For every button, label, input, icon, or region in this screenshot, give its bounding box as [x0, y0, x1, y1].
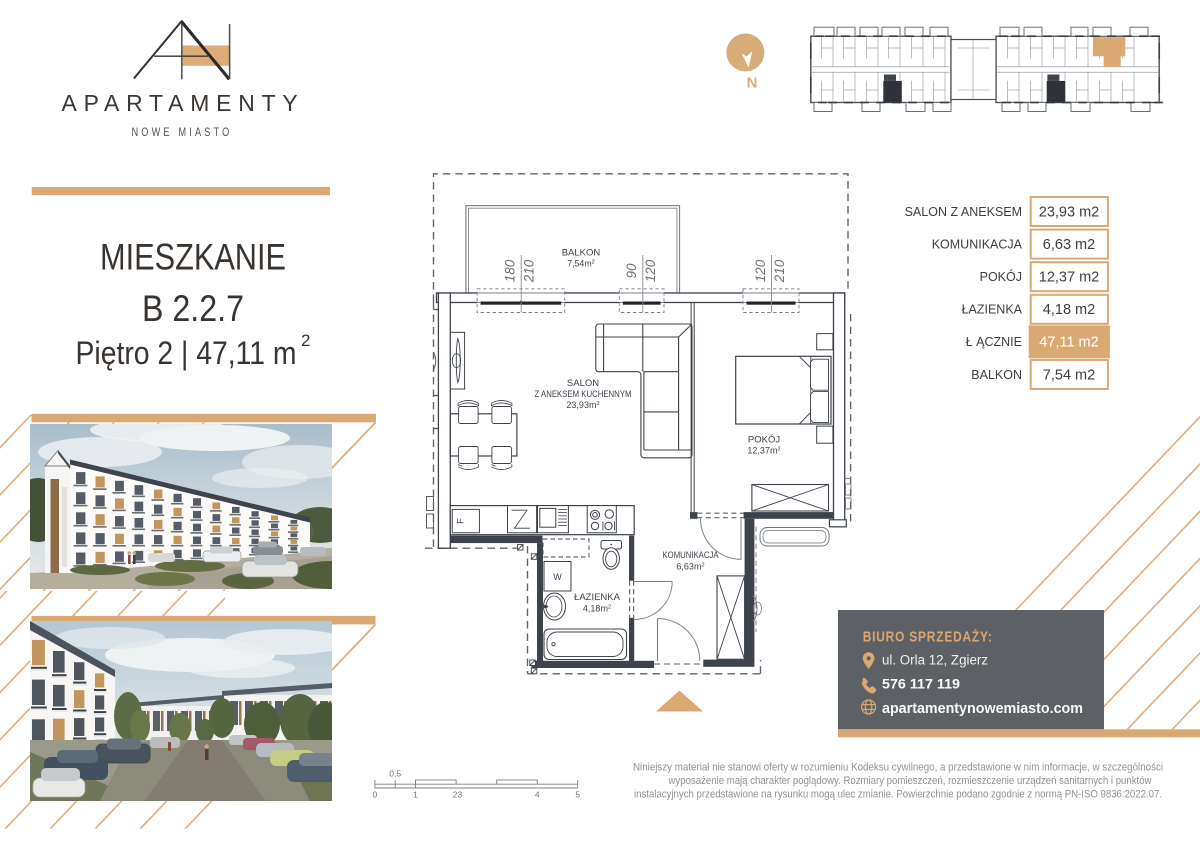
svg-text:4,18 m2: 4,18 m2 — [1043, 302, 1095, 318]
svg-text:23,93m2: 23,93m2 — [566, 400, 599, 410]
svg-text:ŁAZIENKA: ŁAZIENKA — [574, 592, 621, 603]
svg-text:apartamentynowemiasto.com: apartamentynowemiasto.com — [882, 700, 1083, 717]
svg-text:Piętro 2 | 47,11 m: Piętro 2 | 47,11 m — [76, 335, 297, 371]
svg-text:0,5: 0,5 — [389, 769, 401, 779]
svg-text:6,63m2: 6,63m2 — [676, 562, 704, 572]
svg-text:N: N — [747, 75, 758, 92]
svg-text:576 117 119: 576 117 119 — [882, 676, 960, 692]
svg-text:12,37m2: 12,37m2 — [747, 446, 780, 456]
svg-text:Niniejszy materiał nie stanowi: Niniejszy materiał nie stanowi oferty w … — [633, 762, 1163, 774]
svg-text:23: 23 — [453, 790, 463, 800]
svg-text:Ł ĄCZNIE: Ł ĄCZNIE — [966, 335, 1022, 349]
svg-text:F: F — [456, 518, 467, 524]
svg-text:instalacyjnych przedstawione n: instalacyjnych przedstawione na rysunku … — [634, 789, 1162, 801]
svg-text:47,11 m2: 47,11 m2 — [1039, 335, 1098, 351]
svg-text:NOWE MIASTO: NOWE MIASTO — [132, 127, 233, 139]
svg-text:KOMUNIKACJA: KOMUNIKACJA — [663, 550, 719, 560]
svg-text:BALKON: BALKON — [971, 368, 1022, 382]
svg-text:23,93 m2: 23,93 m2 — [1039, 204, 1099, 220]
svg-text:7,54 m2: 7,54 m2 — [1043, 367, 1095, 383]
svg-text:KOMUNIKACJA: KOMUNIKACJA — [932, 237, 1023, 251]
svg-text:120: 120 — [753, 259, 768, 282]
svg-text:120: 120 — [643, 259, 658, 282]
svg-text:ul. Orla 12, Zgierz: ul. Orla 12, Zgierz — [882, 653, 988, 668]
svg-text:ŁAZIENKA: ŁAZIENKA — [962, 303, 1023, 317]
svg-text:210: 210 — [772, 259, 787, 283]
svg-text:W: W — [553, 572, 562, 582]
svg-text:6,63 m2: 6,63 m2 — [1043, 237, 1095, 253]
svg-text:4: 4 — [535, 790, 540, 800]
svg-text:SALON: SALON — [567, 378, 599, 389]
svg-text:180: 180 — [503, 259, 518, 282]
svg-text:5: 5 — [575, 790, 580, 800]
svg-text:1: 1 — [413, 790, 418, 800]
svg-text:wyposażenie mają charakter pog: wyposażenie mają charakter poglądowy. Ro… — [668, 775, 1152, 787]
svg-text:APARTAMENTY: APARTAMENTY — [62, 90, 305, 116]
svg-text:POKÓJ: POKÓJ — [748, 435, 780, 446]
svg-text:POKÓJ: POKÓJ — [980, 269, 1022, 284]
svg-text:4,18m2: 4,18m2 — [583, 604, 611, 614]
svg-text:90: 90 — [624, 263, 639, 279]
svg-text:2: 2 — [301, 331, 310, 350]
svg-text:Z ANEKSEM KUCHENNYM: Z ANEKSEM KUCHENNYM — [535, 389, 632, 399]
svg-text:BIURO SPRZEDAŻY:: BIURO SPRZEDAŻY: — [863, 629, 993, 646]
svg-text:BALKON: BALKON — [562, 248, 601, 259]
svg-text:0: 0 — [373, 790, 378, 800]
svg-text:B 2.2.7: B 2.2.7 — [142, 288, 244, 329]
svg-text:210: 210 — [522, 259, 537, 283]
svg-text:12,37 m2: 12,37 m2 — [1039, 270, 1099, 286]
svg-text:SALON Z ANEKSEM: SALON Z ANEKSEM — [905, 205, 1022, 219]
svg-text:MIESZKANIE: MIESZKANIE — [100, 237, 286, 278]
svg-text:7,54m2: 7,54m2 — [567, 259, 595, 269]
